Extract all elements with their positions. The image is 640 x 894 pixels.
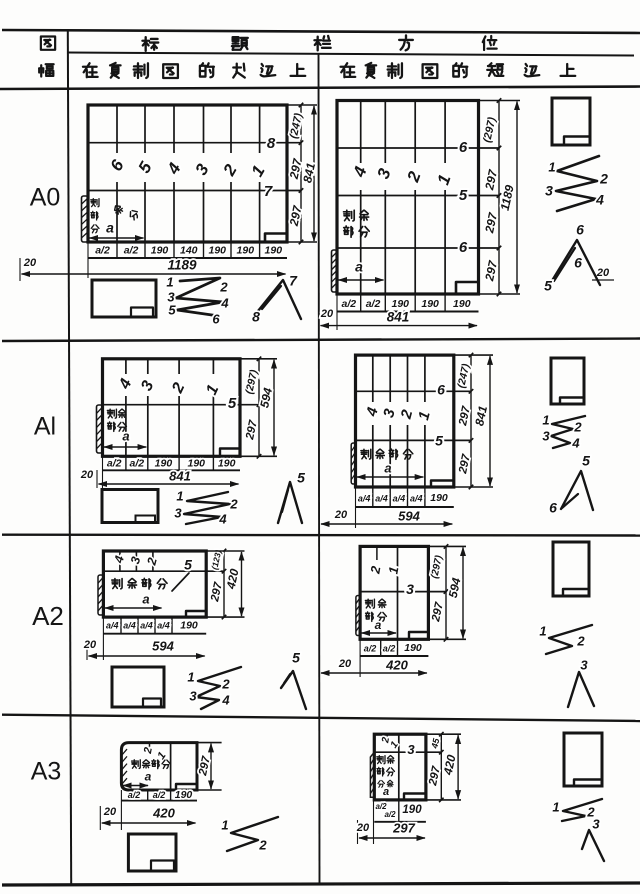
svg-text:5: 5 (297, 470, 305, 486)
svg-text:A2: A2 (32, 601, 64, 631)
svg-text:a/2: a/2 (153, 790, 166, 800)
svg-text:a/4: a/4 (375, 493, 388, 503)
svg-text:190: 190 (237, 244, 255, 256)
svg-text:6: 6 (459, 139, 468, 156)
svg-text:6: 6 (212, 311, 220, 326)
svg-text:3: 3 (189, 688, 197, 703)
svg-text:a/2: a/2 (383, 643, 396, 653)
svg-text:a: a (384, 460, 391, 475)
svg-text:8: 8 (252, 309, 260, 325)
svg-text:2: 2 (219, 279, 228, 294)
svg-text:2: 2 (576, 633, 585, 648)
svg-text:3: 3 (545, 183, 553, 199)
svg-text:20: 20 (80, 469, 94, 481)
svg-text:3: 3 (407, 742, 415, 757)
svg-text:1: 1 (548, 159, 555, 174)
svg-text:a/2: a/2 (124, 244, 139, 256)
svg-text:1: 1 (187, 669, 194, 684)
svg-text:190: 190 (421, 298, 439, 310)
svg-text:5: 5 (459, 187, 468, 204)
svg-text:3: 3 (542, 428, 550, 443)
svg-text:2: 2 (221, 676, 230, 691)
svg-text:841: 841 (387, 310, 410, 325)
svg-text:a: a (106, 220, 114, 236)
svg-text:20: 20 (596, 267, 610, 279)
svg-text:20: 20 (23, 257, 37, 269)
svg-text:a/2: a/2 (366, 298, 381, 310)
svg-text:20: 20 (356, 822, 370, 834)
svg-text:a/4: a/4 (140, 620, 153, 630)
svg-text:5: 5 (168, 302, 176, 317)
svg-text:190: 190 (265, 244, 283, 256)
svg-text:20: 20 (320, 308, 334, 320)
svg-text:a: a (375, 618, 382, 632)
svg-text:841: 841 (169, 468, 191, 483)
svg-text:190: 190 (430, 492, 448, 504)
svg-text:190: 190 (218, 457, 236, 469)
svg-text:a: a (355, 259, 363, 275)
svg-text:6: 6 (576, 222, 584, 238)
svg-text:2: 2 (258, 837, 267, 852)
svg-text:3: 3 (592, 816, 600, 831)
svg-text:594: 594 (398, 508, 420, 523)
svg-text:190: 190 (180, 619, 198, 631)
svg-text:190: 190 (151, 244, 169, 256)
svg-text:a/2: a/2 (364, 643, 377, 653)
svg-text:1: 1 (542, 412, 549, 427)
svg-text:A3: A3 (31, 758, 62, 786)
svg-text:297: 297 (392, 820, 415, 835)
svg-text:7: 7 (264, 183, 273, 200)
svg-text:5: 5 (292, 650, 300, 666)
svg-text:420: 420 (152, 805, 175, 820)
svg-text:4: 4 (221, 692, 230, 707)
svg-text:2: 2 (229, 496, 238, 511)
svg-text:a: a (142, 591, 149, 606)
svg-text:5: 5 (228, 395, 237, 412)
svg-text:a/4: a/4 (358, 493, 371, 503)
svg-text:140: 140 (180, 244, 198, 256)
svg-text:a/4: a/4 (410, 493, 423, 503)
svg-text:5: 5 (582, 453, 590, 469)
svg-text:20: 20 (334, 509, 348, 521)
svg-text:6: 6 (549, 500, 557, 516)
svg-text:1: 1 (176, 488, 183, 503)
svg-text:a/4: a/4 (106, 620, 119, 630)
svg-text:190: 190 (404, 642, 422, 654)
svg-text:2: 2 (573, 419, 582, 434)
svg-text:20: 20 (338, 658, 352, 670)
svg-text:190: 190 (391, 298, 409, 310)
svg-text:a: a (122, 428, 129, 443)
svg-text:1189: 1189 (167, 258, 197, 273)
svg-text:190: 190 (453, 298, 471, 310)
svg-text:6: 6 (459, 239, 468, 256)
svg-text:4: 4 (218, 511, 227, 526)
svg-text:a/2: a/2 (107, 457, 122, 469)
svg-text:20: 20 (83, 639, 97, 651)
svg-text:a/2: a/2 (342, 298, 357, 310)
svg-text:2: 2 (599, 171, 608, 187)
svg-text:a/2: a/2 (384, 810, 396, 819)
svg-text:a/4: a/4 (157, 620, 170, 630)
svg-text:3: 3 (580, 657, 588, 672)
svg-text:1: 1 (221, 817, 228, 832)
svg-text:6: 6 (437, 382, 445, 398)
svg-text:1: 1 (166, 274, 173, 289)
svg-text:190: 190 (208, 244, 226, 256)
svg-text:1: 1 (552, 799, 559, 814)
svg-text:20: 20 (103, 806, 117, 818)
svg-text:3: 3 (174, 505, 182, 520)
svg-text:190: 190 (175, 789, 193, 801)
svg-text:a/2: a/2 (128, 790, 141, 800)
svg-text:1: 1 (539, 623, 546, 638)
svg-text:8: 8 (267, 135, 276, 152)
svg-text:5: 5 (184, 557, 192, 573)
svg-text:4: 4 (595, 192, 604, 208)
svg-text:6: 6 (574, 255, 582, 271)
svg-text:3: 3 (406, 581, 414, 597)
svg-text:Al: Al (34, 413, 56, 441)
svg-text:190: 190 (402, 804, 422, 816)
svg-text:a/2: a/2 (130, 457, 145, 469)
svg-text:594: 594 (152, 638, 174, 653)
svg-text:5: 5 (435, 433, 443, 449)
svg-text:7: 7 (289, 273, 298, 289)
svg-text:a: a (383, 786, 389, 798)
svg-text:a/2: a/2 (95, 244, 110, 256)
svg-text:420: 420 (385, 657, 408, 672)
svg-text:A0: A0 (30, 184, 61, 212)
svg-text:a: a (145, 770, 152, 784)
svg-text:4: 4 (220, 295, 229, 310)
svg-text:a/4: a/4 (393, 493, 406, 503)
svg-text:4: 4 (571, 435, 580, 450)
svg-text:5: 5 (544, 278, 552, 294)
svg-text:a/4: a/4 (123, 620, 136, 630)
